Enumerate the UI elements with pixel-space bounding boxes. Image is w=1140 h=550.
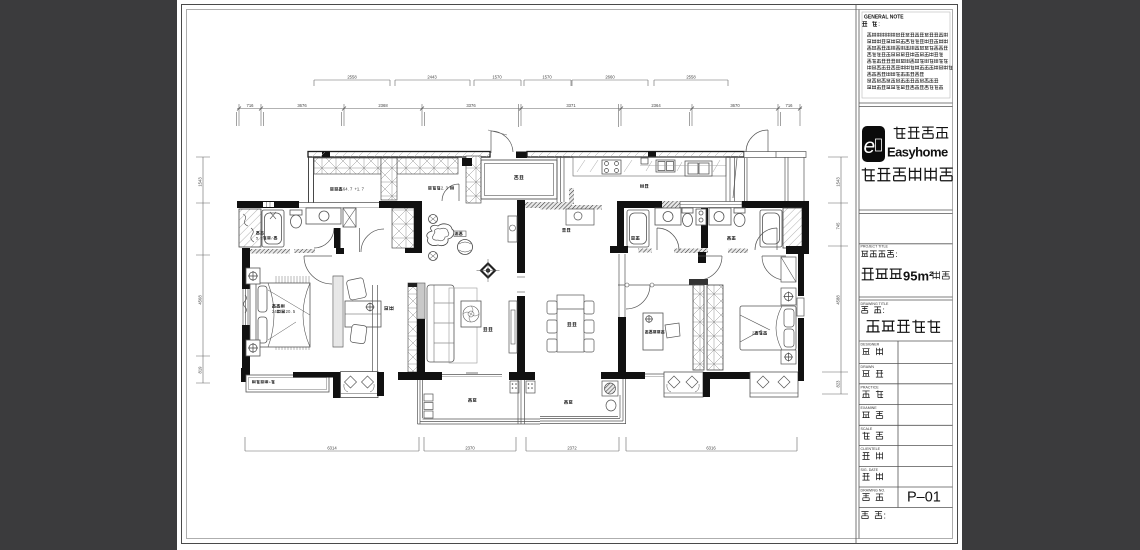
svg-text:1570: 1570	[542, 75, 552, 80]
svg-text:.: .	[443, 185, 444, 190]
svg-text:PROJECT TITLE: PROJECT TITLE	[861, 245, 889, 249]
svg-text:.: .	[290, 309, 291, 314]
svg-text::: :	[884, 510, 886, 520]
svg-text:.: .	[258, 235, 259, 240]
svg-text:2443: 2443	[427, 75, 437, 80]
svg-text:4568: 4568	[198, 295, 203, 305]
svg-text:745: 745	[836, 222, 841, 230]
svg-text:GENERAL NOTE: GENERAL NOTE	[864, 15, 904, 21]
svg-text:e: e	[864, 135, 876, 158]
svg-text:P–01: P–01	[907, 490, 941, 506]
svg-text:2660: 2660	[605, 75, 615, 80]
svg-text:716: 716	[247, 103, 255, 108]
svg-text:716: 716	[786, 103, 794, 108]
svg-text:1543: 1543	[836, 177, 841, 187]
svg-text:CLIENTELE: CLIENTELE	[861, 447, 881, 451]
svg-text:6316: 6316	[706, 446, 716, 451]
svg-text:6314: 6314	[327, 446, 337, 451]
svg-text:3670: 3670	[730, 103, 740, 108]
svg-text:.: .	[359, 186, 360, 191]
svg-text:2368: 2368	[378, 103, 388, 108]
svg-text:Easyhome: Easyhome	[887, 145, 948, 160]
svg-text:2372: 2372	[567, 446, 577, 451]
svg-text:SIG. DATE: SIG. DATE	[861, 468, 879, 472]
svg-text:3376: 3376	[466, 103, 476, 108]
svg-text:2370: 2370	[465, 446, 475, 451]
svg-text:EXAMINE: EXAMINE	[861, 406, 878, 410]
svg-text:95m²: 95m²	[903, 269, 934, 284]
svg-text:819: 819	[198, 366, 203, 374]
svg-text:3371: 3371	[566, 103, 576, 108]
svg-text:2558: 2558	[347, 75, 357, 80]
svg-text:1543: 1543	[198, 177, 203, 187]
svg-text:4588: 4588	[836, 295, 841, 305]
svg-text:823: 823	[836, 380, 841, 388]
svg-text:PRACTICE: PRACTICE	[861, 385, 880, 389]
svg-text:2558: 2558	[686, 75, 696, 80]
svg-text:DESIGNER: DESIGNER	[861, 343, 880, 347]
svg-text:DRAWN: DRAWN	[861, 365, 875, 369]
svg-text:2364: 2364	[651, 103, 661, 108]
svg-text:1570: 1570	[492, 75, 502, 80]
svg-text::: :	[883, 306, 885, 315]
svg-text:2: 2	[261, 235, 263, 240]
svg-text:.: .	[348, 186, 349, 191]
svg-text::: :	[895, 250, 897, 259]
svg-text:DRAWING NO.: DRAWING NO.	[861, 489, 886, 493]
svg-text:SCALE: SCALE	[861, 427, 873, 431]
svg-text:3676: 3676	[297, 103, 307, 108]
